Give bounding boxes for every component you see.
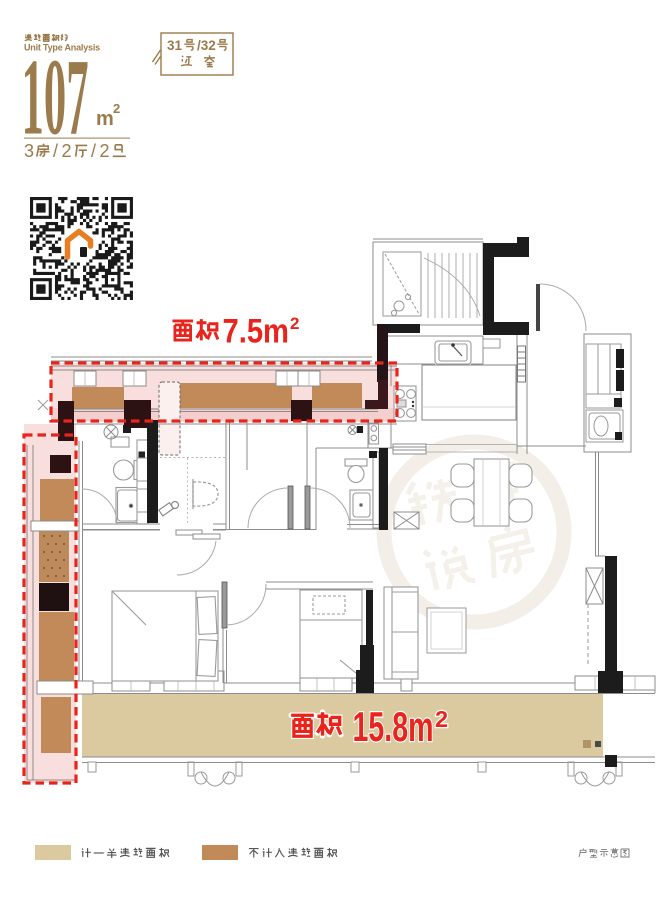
svg-text:2: 2 <box>290 314 299 333</box>
svg-text:31: 31 <box>167 38 183 53</box>
svg-text:7.5m: 7.5m <box>223 313 290 351</box>
svg-text:15.8m: 15.8m <box>353 703 434 750</box>
svg-text:2: 2 <box>435 706 448 732</box>
svg-text:2: 2 <box>62 141 72 161</box>
svg-text:/32: /32 <box>197 38 216 53</box>
svg-text:/: / <box>53 141 58 161</box>
svg-text:m: m <box>96 108 114 130</box>
svg-text:2: 2 <box>100 141 110 161</box>
svg-text:2: 2 <box>113 101 120 116</box>
svg-text:3: 3 <box>24 141 34 161</box>
svg-text:/: / <box>91 141 96 161</box>
